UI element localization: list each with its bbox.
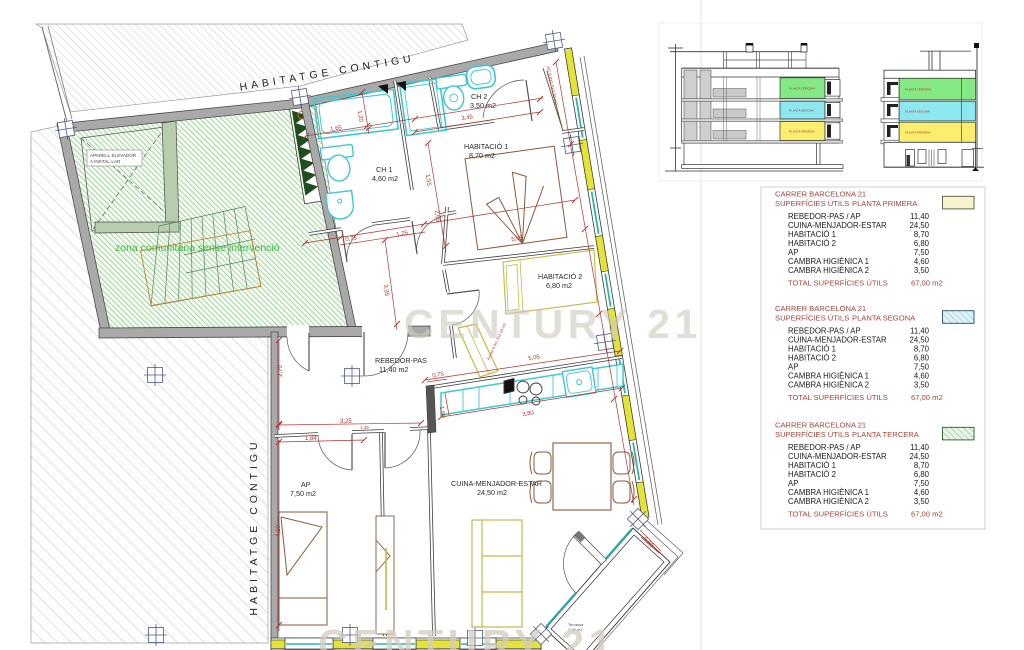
svg-text:67,00 m2: 67,00 m2	[911, 510, 943, 519]
svg-text:6,80: 6,80	[914, 470, 930, 479]
svg-text:7,50: 7,50	[914, 479, 930, 488]
svg-text:3,25: 3,25	[340, 419, 352, 425]
svg-text:CH 2: CH 2	[471, 92, 487, 101]
svg-text:7,50: 7,50	[914, 362, 930, 371]
svg-text:24,50: 24,50	[909, 452, 929, 461]
svg-text:11,40: 11,40	[910, 443, 930, 452]
svg-text:7,50 m2: 7,50 m2	[290, 489, 316, 498]
svg-text:3,50 m2: 3,50 m2	[470, 101, 496, 110]
svg-text:TOTAL SUPERFÍCIES ÚTILS: TOTAL SUPERFÍCIES ÚTILS	[788, 510, 888, 519]
svg-text:A INSTAL·LAR: A INSTAL·LAR	[90, 159, 121, 164]
svg-text:SUPERFÍCIES ÚTILS: SUPERFÍCIES ÚTILS	[775, 199, 849, 208]
svg-text:11,40 m2: 11,40 m2	[379, 365, 408, 374]
svg-text:PLANTA SEGONA: PLANTA SEGONA	[905, 110, 930, 114]
svg-text:PLANTA PRIMERA: PLANTA PRIMERA	[789, 130, 815, 134]
svg-text:SUPERFÍCIES ÚTILS: SUPERFÍCIES ÚTILS	[775, 313, 849, 322]
svg-text:CAMBRA HIGIÈNICA 1: CAMBRA HIGIÈNICA 1	[788, 488, 869, 497]
svg-text:2,70: 2,70	[278, 365, 284, 377]
svg-text:1,84: 1,84	[305, 436, 317, 442]
svg-text:3,50: 3,50	[914, 497, 930, 506]
svg-text:PLANTA TERCERA: PLANTA TERCERA	[789, 87, 815, 91]
svg-text:HABITACIÓ 2: HABITACIÓ 2	[788, 353, 836, 362]
svg-text:HABITACIÓ 1: HABITACIÓ 1	[788, 344, 836, 353]
svg-text:HABITACIÓ 1: HABITACIÓ 1	[464, 142, 508, 151]
svg-text:CAMBRA HIGIÈNICA 1: CAMBRA HIGIÈNICA 1	[788, 257, 869, 266]
svg-text:PLANTA PRIMERA: PLANTA PRIMERA	[905, 131, 931, 135]
svg-text:HABITACIÓ 2: HABITACIÓ 2	[788, 470, 836, 479]
svg-text:HABITACIÓ 2: HABITACIÓ 2	[788, 239, 836, 248]
svg-text:CUINA-MENJADOR-ESTAR: CUINA-MENJADOR-ESTAR	[788, 335, 887, 344]
svg-text:REBEDOR-PAS: REBEDOR-PAS	[375, 356, 427, 365]
svg-text:CH 1: CH 1	[376, 165, 392, 174]
svg-text:1,40: 1,40	[360, 425, 369, 430]
svg-text:PLANTA TERCERA: PLANTA TERCERA	[905, 88, 931, 92]
svg-text:AP: AP	[788, 362, 798, 371]
svg-text:HABITACIÓ 1: HABITACIÓ 1	[788, 230, 836, 239]
svg-text:24,50 m2: 24,50 m2	[477, 488, 507, 497]
svg-text:CUINA-MENJADOR-ESTAR: CUINA-MENJADOR-ESTAR	[451, 479, 542, 488]
svg-text:HABITACIÓ 2: HABITACIÓ 2	[538, 272, 582, 281]
svg-text:6,80 m2: 6,80 m2	[546, 281, 572, 290]
svg-text:PLANTA TERCERA: PLANTA TERCERA	[852, 430, 920, 439]
svg-text:HABITACIÓ 1: HABITACIÓ 1	[788, 461, 836, 470]
svg-text:CARRER BARCELONA 21: CARRER BARCELONA 21	[775, 421, 866, 430]
svg-text:CUINA-MENJADOR-ESTAR: CUINA-MENJADOR-ESTAR	[788, 221, 887, 230]
svg-text:AP: AP	[788, 479, 798, 488]
svg-text:24,50: 24,50	[909, 221, 929, 230]
svg-text:4,60: 4,60	[914, 257, 930, 266]
svg-text:24,50: 24,50	[909, 335, 929, 344]
svg-text:3,50: 3,50	[914, 380, 930, 389]
svg-text:APARELL ELEVADOR: APARELL ELEVADOR	[90, 153, 137, 158]
svg-text:SUPERFÍCIES ÚTILS: SUPERFÍCIES ÚTILS	[775, 430, 849, 439]
svg-text:PLANTA PRIMERA: PLANTA PRIMERA	[852, 199, 918, 208]
svg-text:CAMBRA HIGIÈNICA 1: CAMBRA HIGIÈNICA 1	[788, 371, 869, 380]
svg-text:CAMBRA HIGIÈNICA 2: CAMBRA HIGIÈNICA 2	[788, 497, 869, 506]
svg-text:6,80: 6,80	[914, 239, 930, 248]
svg-text:11,40: 11,40	[910, 212, 930, 221]
svg-text:AP: AP	[788, 248, 798, 257]
svg-text:CENTURY 21: CENTURY 21	[318, 621, 616, 650]
svg-text:4,10: 4,10	[276, 525, 282, 537]
svg-text:HABITATGE CONTIGU: HABITATGE CONTIGU	[248, 438, 260, 615]
svg-text:8,70 m2: 8,70 m2	[469, 151, 495, 160]
svg-text:8,70: 8,70	[914, 230, 930, 239]
svg-text:REBEDOR-PAS / AP: REBEDOR-PAS / AP	[788, 212, 861, 221]
svg-text:4,60: 4,60	[914, 371, 930, 380]
svg-text:REBEDOR-PAS / AP: REBEDOR-PAS / AP	[788, 326, 861, 335]
svg-text:4,60 m2: 4,60 m2	[372, 174, 398, 183]
svg-text:CAMBRA HIGIÈNICA 2: CAMBRA HIGIÈNICA 2	[788, 266, 869, 275]
svg-text:7,50: 7,50	[914, 248, 930, 257]
svg-text:8,70: 8,70	[914, 344, 930, 353]
svg-text:6,80: 6,80	[914, 353, 930, 362]
svg-text:CENTURY 21: CENTURY 21	[404, 301, 702, 347]
svg-text:TOTAL SUPERFÍCIES ÚTILS: TOTAL SUPERFÍCIES ÚTILS	[788, 393, 888, 402]
svg-text:11,40: 11,40	[910, 326, 930, 335]
svg-text:CUINA-MENJADOR-ESTAR: CUINA-MENJADOR-ESTAR	[788, 452, 887, 461]
svg-text:CAMBRA HIGIÈNICA 2: CAMBRA HIGIÈNICA 2	[788, 380, 869, 389]
svg-text:3,50: 3,50	[914, 266, 930, 275]
svg-text:67,00 m2: 67,00 m2	[911, 393, 943, 402]
svg-text:CARRER BARCELONA 21: CARRER BARCELONA 21	[775, 190, 866, 199]
svg-text:4,60: 4,60	[914, 488, 930, 497]
svg-text:PLANTA SEGONA: PLANTA SEGONA	[789, 109, 814, 113]
svg-text:CARRER BARCELONA 21: CARRER BARCELONA 21	[775, 304, 866, 313]
svg-text:REBEDOR-PAS / AP: REBEDOR-PAS / AP	[788, 443, 861, 452]
svg-text:8,70: 8,70	[914, 461, 930, 470]
svg-text:PLANTA SEGONA: PLANTA SEGONA	[852, 313, 916, 322]
svg-text:AP: AP	[301, 480, 311, 489]
svg-text:TOTAL SUPERFÍCIES ÚTILS: TOTAL SUPERFÍCIES ÚTILS	[788, 279, 888, 288]
svg-text:67,00 m2: 67,00 m2	[911, 279, 943, 288]
